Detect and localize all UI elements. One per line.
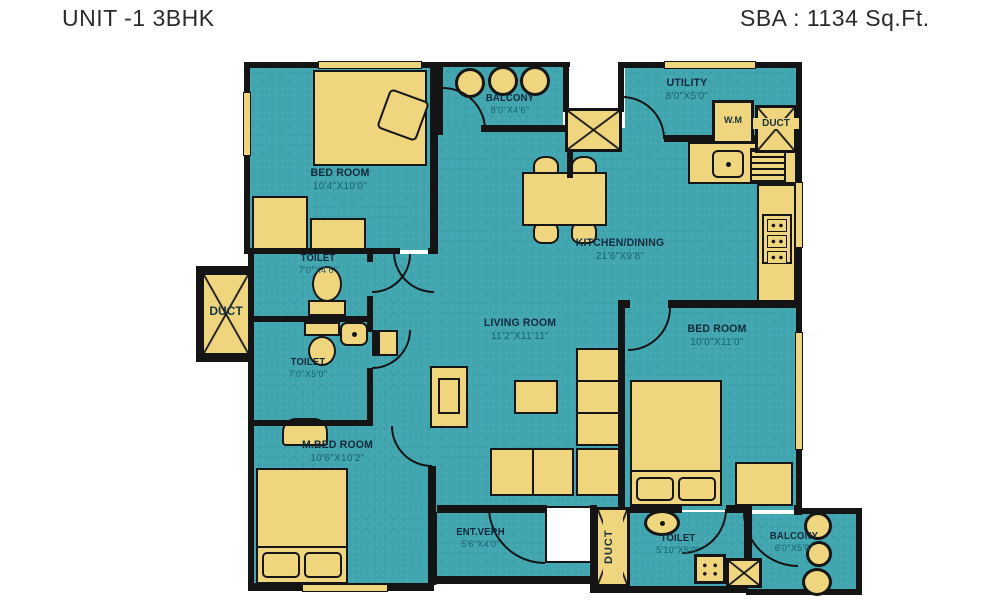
wall (437, 125, 443, 135)
bed-sheet-line (632, 470, 720, 472)
wall (856, 508, 862, 595)
wall (744, 505, 752, 565)
wardrobe (735, 462, 793, 506)
sofa-seam (578, 412, 618, 414)
coffee-table (514, 380, 558, 414)
wall (618, 300, 630, 308)
wash-basin (644, 510, 680, 536)
burner (767, 219, 787, 232)
pillow (678, 477, 716, 501)
sofa-seam (578, 380, 618, 382)
wc-bowl (308, 336, 336, 366)
planter (455, 68, 485, 98)
burner (767, 235, 787, 248)
sink-tap (726, 162, 731, 167)
wall (563, 62, 569, 112)
wall (244, 62, 250, 254)
dining-table (522, 172, 607, 226)
wall (567, 152, 573, 178)
pillow (636, 477, 674, 501)
wall (428, 248, 438, 254)
wall (618, 62, 624, 112)
duct-shaft-utility (755, 105, 797, 153)
wall (800, 508, 862, 514)
window (664, 61, 756, 69)
window (795, 332, 803, 450)
planter (806, 541, 832, 567)
wall (437, 62, 570, 67)
window (243, 92, 251, 156)
kitchen-sink (712, 150, 744, 178)
wall (726, 505, 746, 513)
drain-board (750, 148, 786, 182)
unit-title: UNIT -1 3BHK (62, 5, 215, 32)
shower-tray (694, 554, 726, 584)
window (795, 182, 803, 248)
washing-machine (712, 100, 754, 144)
wc-tank (308, 300, 346, 316)
basin-tap (660, 521, 665, 526)
tv (438, 378, 460, 414)
sofa-section (576, 348, 620, 446)
planter (520, 66, 550, 96)
planter (802, 568, 832, 596)
wall (367, 254, 373, 262)
wall (437, 505, 547, 513)
wall (618, 308, 625, 512)
wall (592, 586, 748, 593)
pillow (262, 552, 300, 578)
hob-stove (762, 214, 792, 264)
pillow (304, 552, 342, 578)
wall (481, 125, 569, 132)
wall (196, 356, 254, 362)
window (302, 584, 388, 592)
window (318, 61, 422, 69)
duct-shaft-top-middle (565, 108, 622, 152)
wall (254, 316, 373, 322)
wall (254, 420, 373, 426)
wardrobe (252, 196, 308, 250)
wall (428, 576, 595, 584)
sba-title: SBA : 1134 Sq.Ft. (740, 5, 930, 32)
duct-trap-balcony (726, 558, 762, 588)
dresser (310, 218, 366, 250)
sofa-seam (532, 450, 534, 494)
planter (804, 512, 832, 540)
wc-tank (304, 322, 340, 336)
wall (430, 62, 438, 254)
duct-shaft-bottom (595, 507, 630, 587)
wc-bowl (312, 266, 342, 302)
wall (438, 62, 443, 128)
basin-tap (352, 332, 357, 337)
wall (244, 248, 400, 254)
duct-shaft-left (201, 272, 251, 356)
planter (488, 66, 518, 96)
wall (367, 368, 373, 426)
wash-basin (340, 322, 368, 346)
wall (428, 512, 437, 584)
burner (767, 251, 787, 264)
wall (630, 505, 682, 513)
geyser (372, 330, 398, 356)
wall (668, 300, 802, 308)
bed-sheet-line (258, 546, 346, 548)
entrance-door-leaf (545, 506, 592, 563)
floor-plan: UNIT -1 3BHK SBA : 1134 Sq.Ft. (0, 0, 1000, 600)
sofa-corner (576, 448, 620, 496)
